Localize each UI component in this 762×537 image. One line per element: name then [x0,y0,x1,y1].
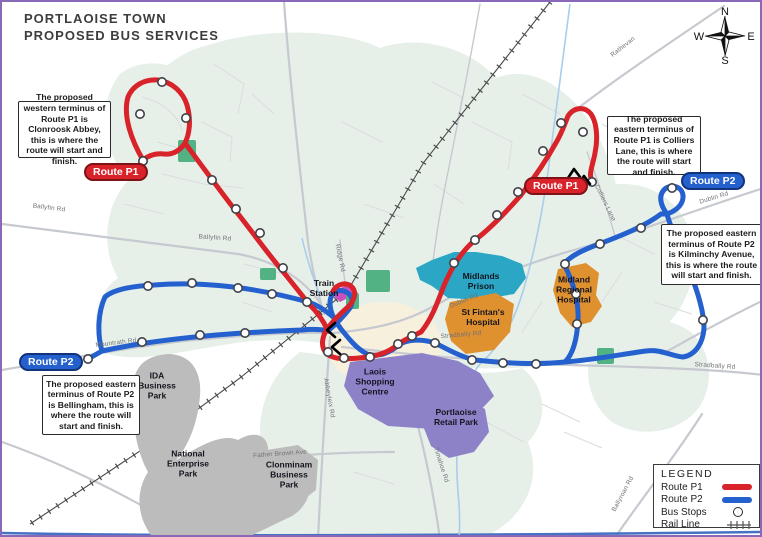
label-clonminam-business-park: Clonminam Business Park [266,460,312,489]
rail-line-symbol [726,520,752,530]
route-p2-label-east: Route P2 [681,172,745,190]
legend-label-rail-line: Rail Line [661,519,700,530]
title-line1: PORTLAOISE TOWN [24,10,219,27]
legend-box: LEGEND Route P1 Route P2 Bus Stops Rail … [653,464,760,528]
label-national-enterprise-park: National Enterprise Park [167,449,209,478]
compass-n: N [721,6,729,18]
legend-row-route-p1: Route P1 [661,481,752,494]
callout-p1-west-terminus: The proposed western terminus of Route P… [18,101,111,158]
route-p1-label-east: Route P1 [524,177,588,195]
route-p1-label-west: Route P1 [84,163,148,181]
route-p2-line-symbol [722,497,752,503]
map-canvas: PORTLAOISE TOWN PROPOSED BUS SERVICES N … [0,0,762,537]
base-map [2,2,762,537]
callout-p2-west-terminus: The proposed eastern terminus of Route P… [42,375,140,435]
route-p2-label-west: Route P2 [19,353,83,371]
legend-title: LEGEND [661,468,752,480]
legend-label-bus-stops: Bus Stops [661,507,707,518]
label-train-station: Train Station [310,279,339,299]
compass-s: S [721,55,728,66]
callout-p2-east-terminus: The proposed eastern terminus of Route P… [661,224,762,285]
legend-row-bus-stops: Bus Stops [661,506,752,519]
label-midland-regional-hospital: Midland Regional Hospital [556,275,592,304]
legend-label-route-p1: Route P1 [661,482,703,493]
callout-p1-east-terminus: The proposed eastern terminus of Route P… [607,116,701,175]
bus-stop-circle-symbol [733,507,743,517]
label-midlands-prison: Midlands Prison [463,272,500,292]
legend-label-route-p2: Route P2 [661,494,703,505]
page-title: PORTLAOISE TOWN PROPOSED BUS SERVICES [24,10,219,44]
compass-e: E [747,31,754,43]
legend-row-rail-line: Rail Line [661,519,752,532]
title-line2: PROPOSED BUS SERVICES [24,27,219,44]
legend-row-route-p2: Route P2 [661,494,752,507]
label-portlaoise-retail-park: Portlaoise Retail Park [434,408,478,428]
label-st-fintans-hospital: St Fintan's Hospital [461,308,504,328]
label-ida-business-park: IDA Business Park [138,371,176,400]
route-p1-line-symbol [722,484,752,490]
label-laois-shopping-centre: Laois Shopping Centre [355,367,394,396]
compass-rose-icon: N E S W [692,4,758,66]
compass-w: W [694,31,705,43]
